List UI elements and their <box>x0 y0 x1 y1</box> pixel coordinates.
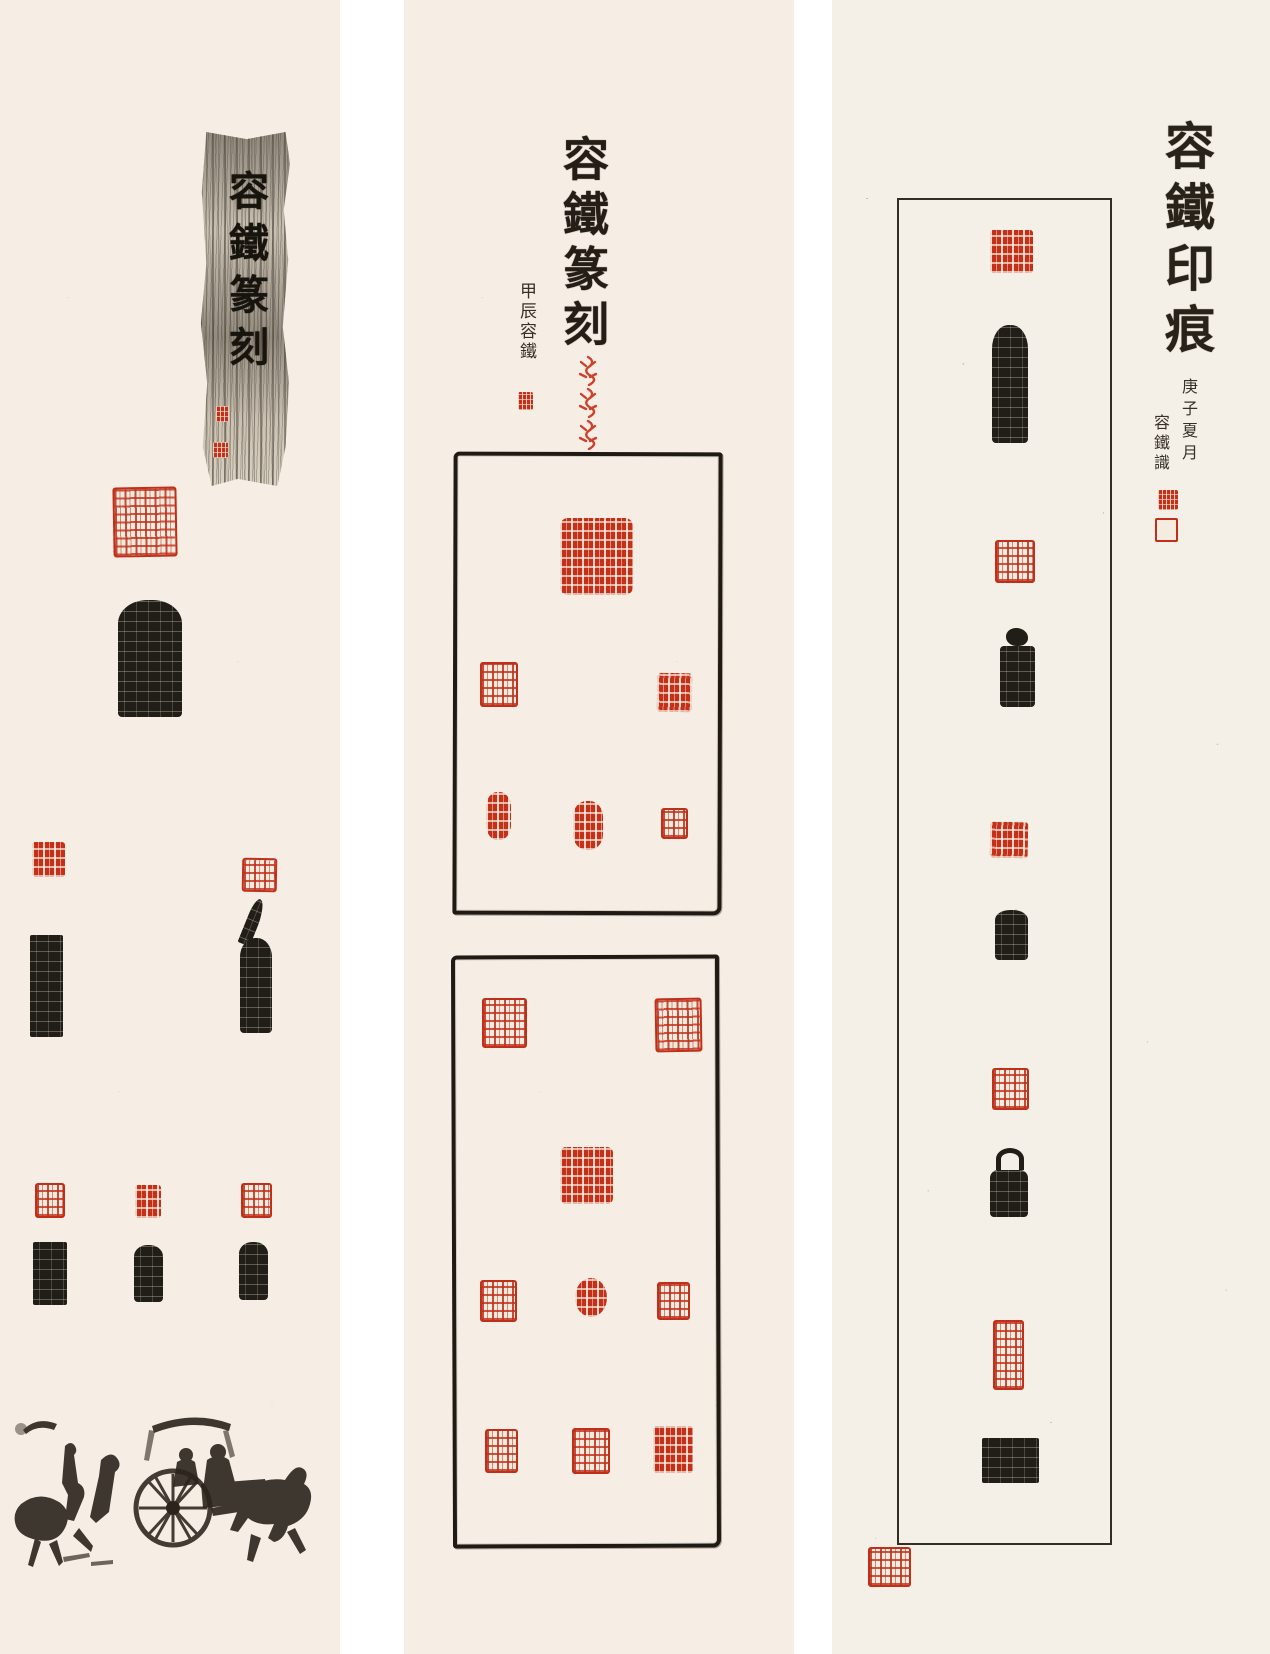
artist-signature: 容鐵 <box>516 322 536 362</box>
black-stone-rubbing <box>118 600 182 717</box>
middle-panel-inscription: 甲辰容鐵 <box>514 282 539 362</box>
red-seal-impression <box>242 858 278 893</box>
red-signature-seal <box>1155 518 1178 542</box>
red-seal-impression <box>995 540 1035 583</box>
artwork-triptych: 容鐵篆刻 <box>0 0 1270 1654</box>
red-signature-seal <box>1158 490 1178 510</box>
red-seal-impression <box>32 842 65 877</box>
red-seal-impression <box>112 486 177 557</box>
red-seal-impression <box>655 998 703 1053</box>
right-panel-title: 容鐵印痕 <box>1150 120 1222 364</box>
red-seal-impression <box>485 1429 518 1473</box>
red-seal-impression <box>661 808 688 839</box>
red-seal-impression <box>657 673 693 713</box>
black-stone-rubbing-wide <box>982 1438 1039 1483</box>
red-seal-impression <box>241 1183 272 1218</box>
red-seal-impression-oval <box>573 801 603 850</box>
date-inscription: 庚子夏月 <box>1176 378 1200 466</box>
red-seal-impression-oval <box>486 792 511 840</box>
bird-insect-script-ornament <box>573 354 603 450</box>
black-stone-rubbing <box>995 910 1028 960</box>
left-scroll-panel: 容鐵篆刻 <box>0 0 340 1654</box>
red-seal-impression <box>560 1147 613 1204</box>
red-signature-seal <box>518 392 533 410</box>
red-seal-impression <box>653 1426 693 1473</box>
black-stone-rubbing <box>992 325 1028 443</box>
red-seal-impression <box>990 230 1033 273</box>
artist-signature: 容鐵識 <box>1148 414 1172 474</box>
black-stone-rubbing <box>240 938 272 1033</box>
middle-panel-title: 容鐵篆刻 <box>550 135 616 355</box>
black-stone-rubbing <box>990 1170 1028 1217</box>
black-stone-rubbing <box>1000 646 1035 707</box>
black-stone-rubbing <box>239 1242 268 1300</box>
red-seal-impression <box>480 662 518 707</box>
black-stone-rubbing <box>33 1242 67 1305</box>
red-seal-impression <box>135 1185 161 1218</box>
red-seal-impression <box>868 1547 911 1587</box>
date-inscription: 甲辰 <box>516 282 536 322</box>
red-seal-impression <box>990 822 1029 859</box>
red-seal-impression <box>213 442 228 458</box>
red-seal-impression-large <box>560 518 633 595</box>
red-seal-impression <box>35 1183 65 1218</box>
black-stone-rubbing <box>134 1245 163 1302</box>
left-panel-title: 容鐵篆刻 <box>216 170 274 378</box>
red-seal-impression <box>657 1282 690 1320</box>
seal-stone-knob <box>1006 628 1028 646</box>
red-seal-impression <box>572 1428 610 1474</box>
red-seal-impression <box>480 1280 517 1322</box>
red-seal-impression <box>992 1068 1029 1110</box>
red-seal-impression <box>482 998 527 1048</box>
right-scroll-panel: 容鐵印痕 庚子夏月 容鐵識 <box>832 0 1270 1654</box>
red-seal-impression <box>216 406 229 422</box>
horse-chariot-rubbing-illustration <box>5 1408 320 1653</box>
middle-scroll-panel: 容鐵篆刻 甲辰容鐵 <box>404 0 794 1654</box>
red-seal-impression-round <box>575 1278 607 1317</box>
title-rubbing-strip: 容鐵篆刻 <box>200 132 290 486</box>
red-seal-impression-tall <box>993 1320 1024 1390</box>
black-stone-rubbing <box>30 935 63 1037</box>
seal-stone-handle <box>996 1148 1024 1170</box>
